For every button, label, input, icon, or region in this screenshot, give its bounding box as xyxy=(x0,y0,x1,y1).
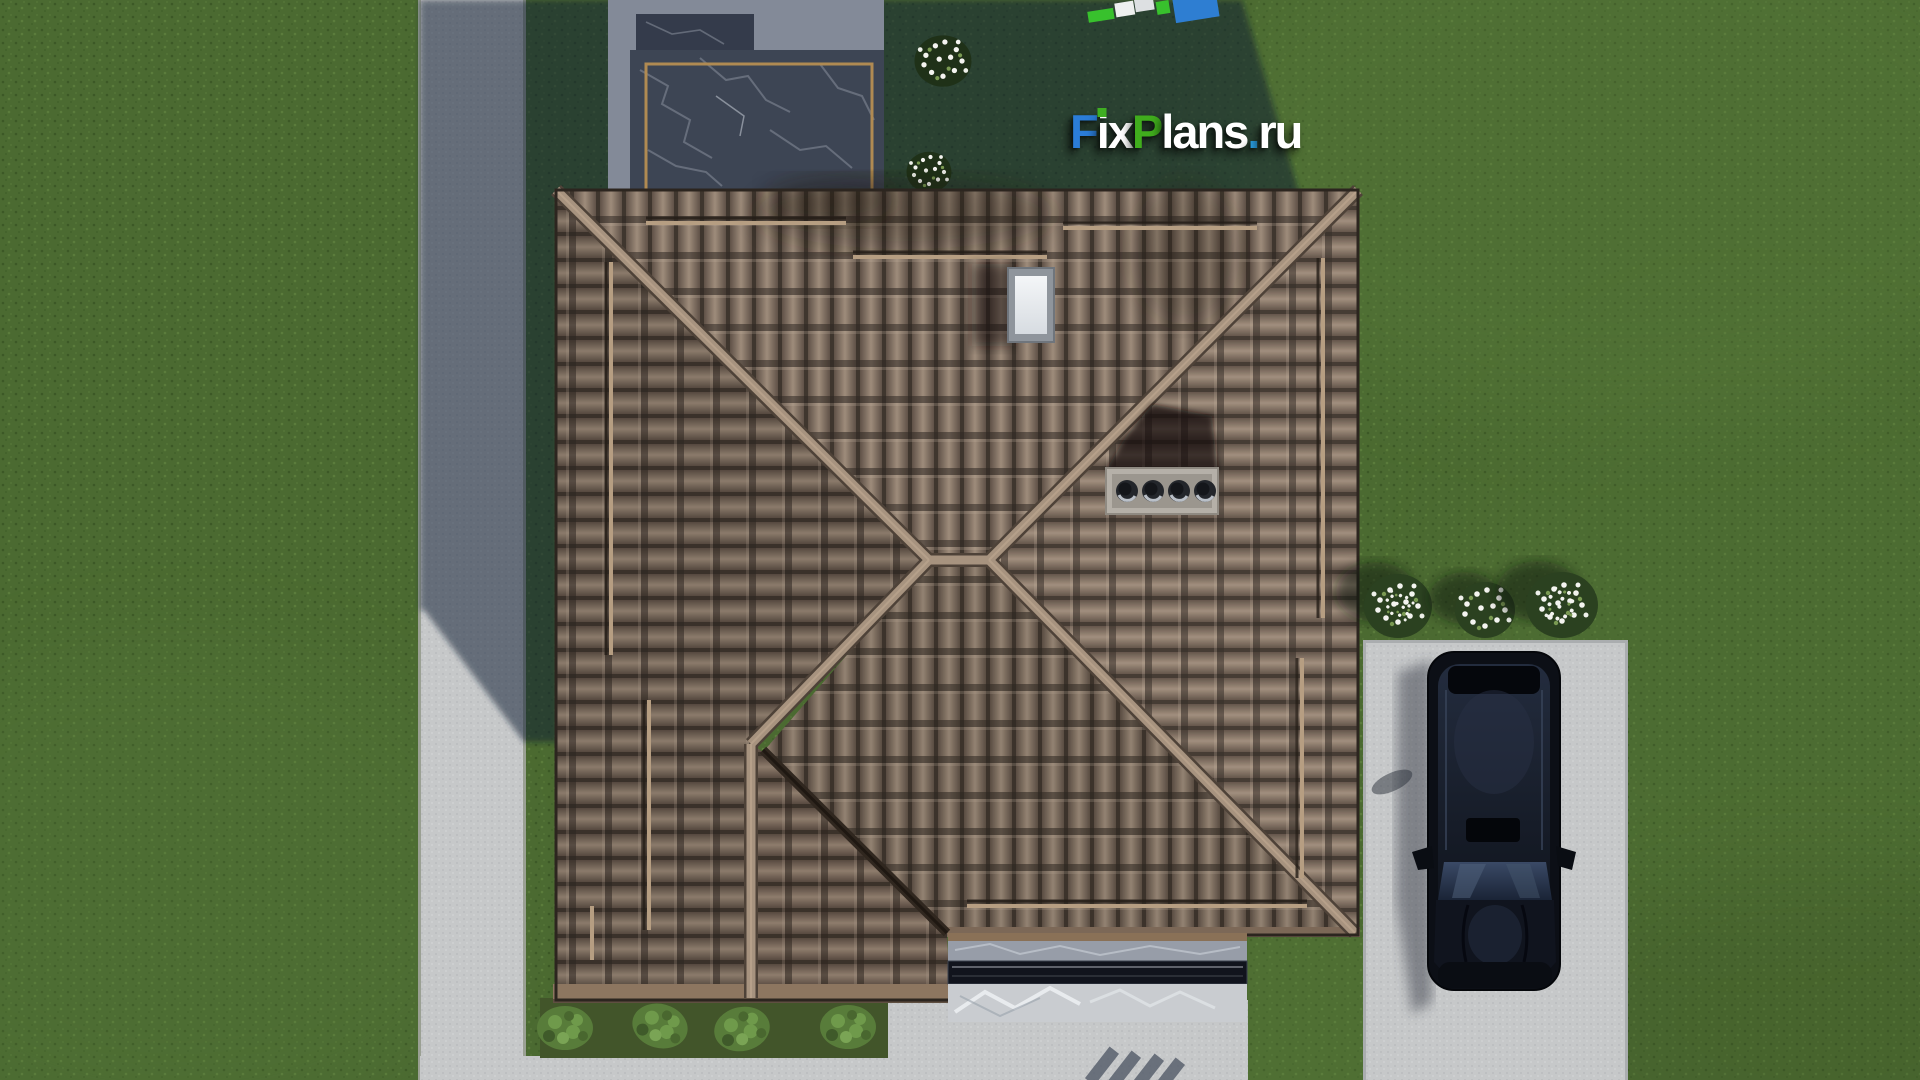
car-sunroof xyxy=(1466,818,1520,842)
terrace-glass-band xyxy=(948,961,1247,984)
site-watermark-logo: FixPlans.ru xyxy=(1070,104,1301,159)
flowering-bushes-driveway xyxy=(1336,561,1598,638)
roof-skylight xyxy=(972,264,1054,346)
canopy-upper-block xyxy=(636,14,754,56)
canopy-marble-panel xyxy=(630,50,884,190)
house-roof xyxy=(553,176,1360,1003)
car-rear-window xyxy=(1448,666,1540,694)
aerial-site-render: FixPlans.ru xyxy=(0,0,1920,1080)
grass-patch-tint xyxy=(1248,938,1363,1080)
scene-canvas xyxy=(0,0,1920,1080)
car-front-bumper xyxy=(1438,962,1552,988)
planting-bed-bottom xyxy=(537,998,888,1058)
garage-flat-roof xyxy=(608,0,884,204)
